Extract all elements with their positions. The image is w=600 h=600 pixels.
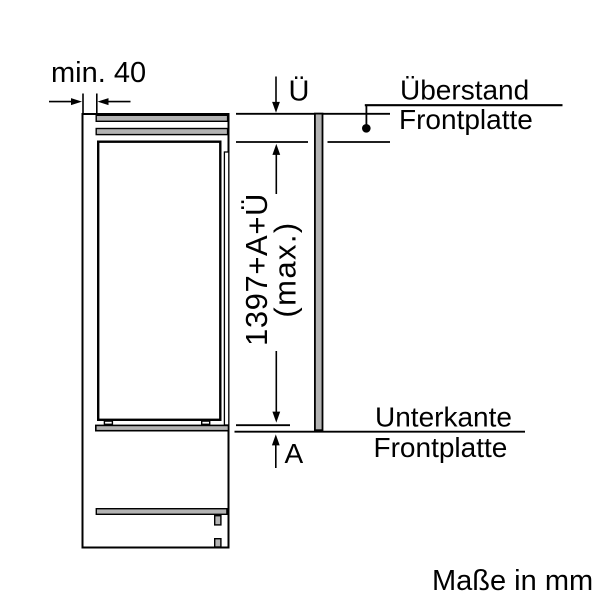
svg-text:Maße in mm: Maße in mm [432, 565, 593, 597]
svg-text:Überstand: Überstand [400, 75, 529, 106]
svg-text:Frontplatte: Frontplatte [374, 432, 508, 463]
svg-text:min. 40: min. 40 [51, 57, 146, 89]
svg-text:A: A [285, 438, 304, 469]
svg-text:Ü: Ü [289, 76, 310, 108]
svg-text:Frontplatte: Frontplatte [399, 104, 533, 135]
svg-text:(max.): (max.) [267, 221, 302, 317]
svg-text:Unterkante: Unterkante [375, 402, 512, 433]
